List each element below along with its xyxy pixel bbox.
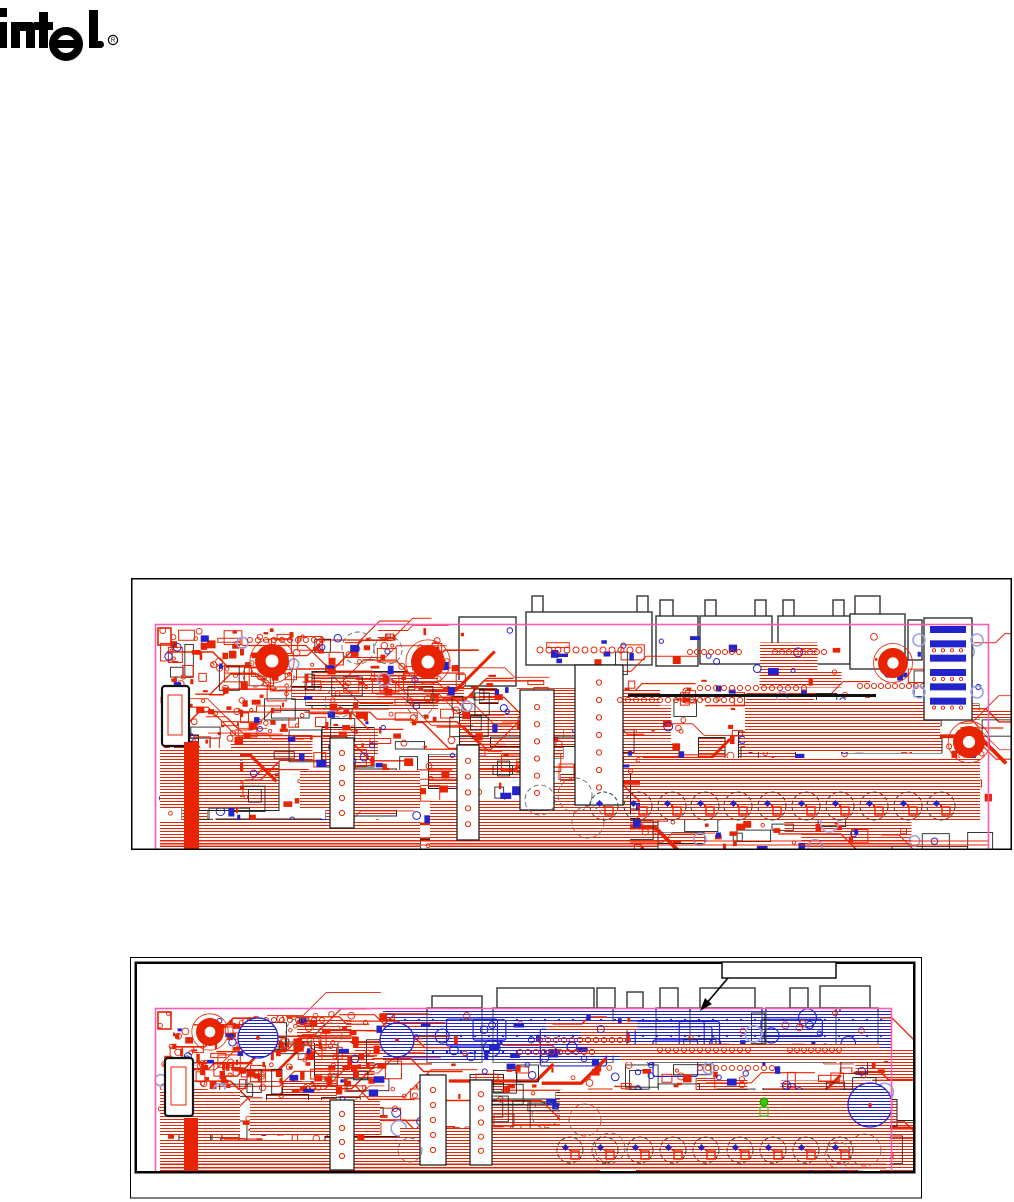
- intel-logo: R: [0, 2, 127, 70]
- copper-fill-region: [745, 700, 940, 752]
- connector-tab: [660, 988, 678, 1008]
- copper-fill-region: [640, 758, 980, 820]
- connector-body: [459, 617, 516, 686]
- edge-connector: [162, 686, 189, 746]
- copper-fill-region: [300, 770, 420, 810]
- ic-socket: [520, 690, 554, 810]
- ic-socket: [575, 665, 623, 805]
- edge-connector: [165, 1058, 193, 1116]
- mounting-hole: [250, 639, 294, 683]
- fan-hatched-circle: [380, 1023, 414, 1057]
- usb-stack-connector: [913, 618, 983, 720]
- letter-e-bar: [53, 40, 79, 48]
- connector-tab: [627, 992, 643, 1008]
- letter-n: [26, 27, 35, 48]
- pcb-board-top: [158, 596, 1012, 850]
- ic-socket: [420, 1075, 446, 1165]
- connector-tab: [783, 600, 794, 618]
- connector-tab: [820, 986, 870, 1008]
- connector-tab: [833, 600, 844, 618]
- power-plane-bar: [184, 742, 199, 850]
- connector-tab: [597, 988, 615, 1008]
- fan-hatched-circle: [848, 1083, 892, 1127]
- connector-tab: [497, 988, 594, 1008]
- connector-tab: [705, 600, 716, 618]
- ic-socket: [330, 1100, 354, 1170]
- connector-tab: [755, 600, 766, 618]
- callout-label-box: [722, 962, 836, 978]
- figure-pcb-layout-with-callout: [130, 957, 922, 1202]
- connector-tab: [855, 596, 880, 616]
- intel-logo-letters: [0, 8, 104, 57]
- figure-pcb-layout-top: [131, 578, 1012, 850]
- ic-socket: [330, 738, 354, 828]
- rear-panel-connectors: [459, 596, 922, 686]
- pcb-board-bottom: [155, 986, 922, 1202]
- connector-tab: [432, 996, 482, 1008]
- copper-fill-region: [250, 1100, 380, 1135]
- mounting-hole: [948, 721, 990, 763]
- copper-fill-region: [620, 1044, 880, 1062]
- registered-mark-letter: R: [111, 38, 116, 44]
- fan-hatched-circle: [238, 1018, 278, 1058]
- mounting-hole: [192, 1014, 228, 1050]
- letter-l-foot: [89, 41, 104, 48]
- document-page: R: [0, 0, 1014, 1202]
- power-plane-bar: [184, 1118, 198, 1172]
- mounting-hole: [874, 644, 913, 683]
- connector-tab: [660, 600, 673, 618]
- component-bar: [628, 694, 876, 697]
- letter-t-cross: [34, 22, 53, 30]
- letter-i-stem: [0, 22, 7, 48]
- ic-socket: [457, 745, 479, 840]
- fiducial-marker: [158, 1012, 171, 1029]
- copper-fill-region: [160, 748, 240, 808]
- mounting-hole: [406, 640, 450, 684]
- ic-socket: [470, 1080, 492, 1165]
- connector-tab: [790, 988, 808, 1008]
- letter-i-dot: [0, 8, 7, 17]
